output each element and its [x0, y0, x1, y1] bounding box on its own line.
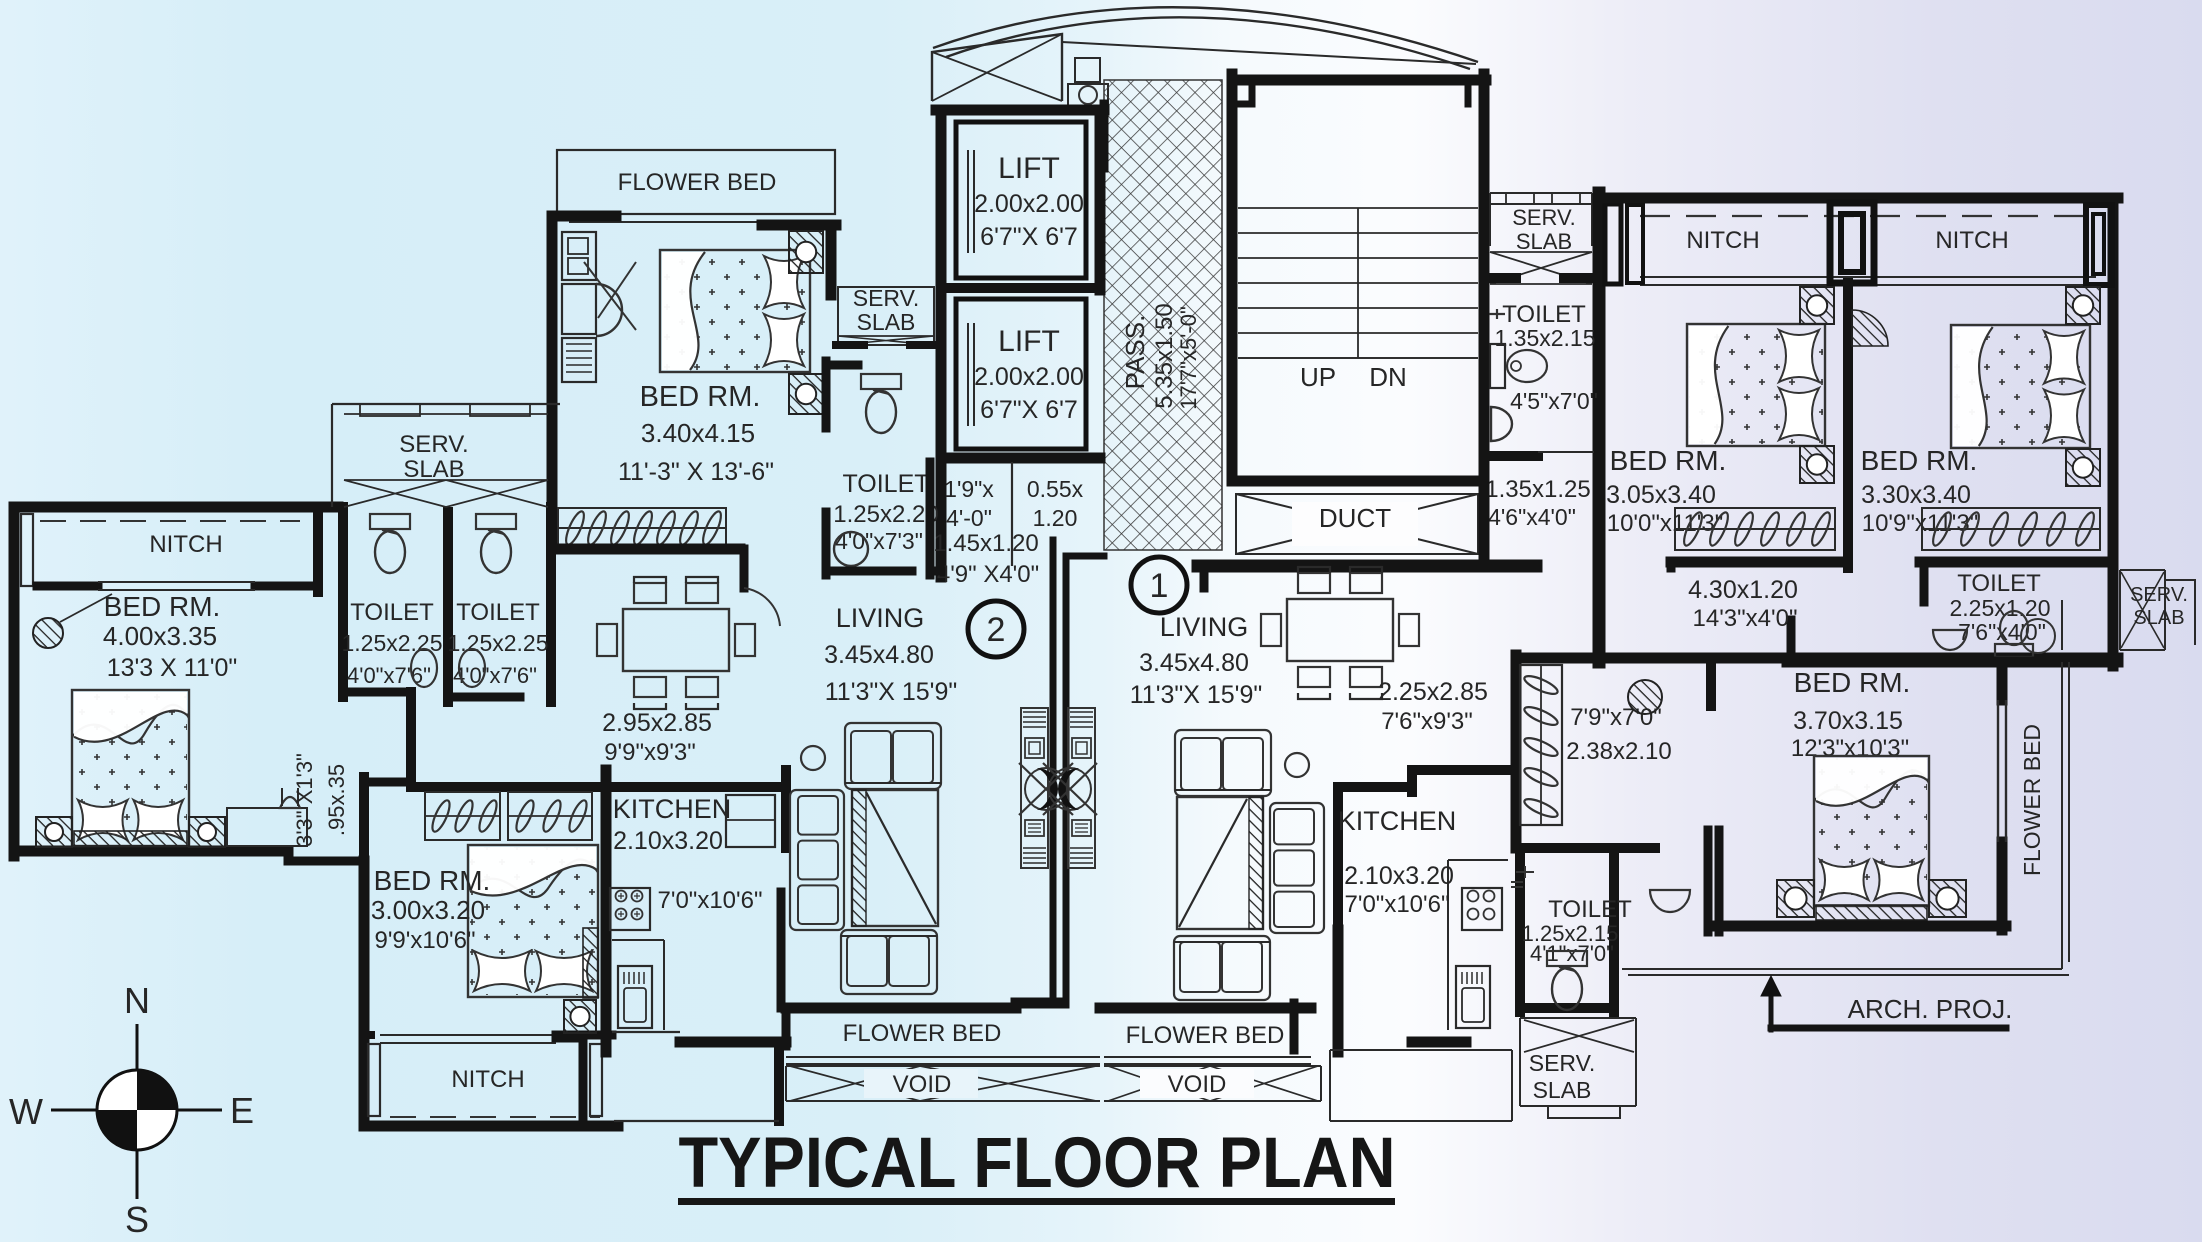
svg-text:PASS.: PASS.	[1120, 315, 1150, 390]
svg-text:VOID: VOID	[893, 1071, 952, 1098]
svg-text:5.35x1.50: 5.35x1.50	[1151, 303, 1178, 408]
svg-text:4'9" X4'0": 4'9" X4'0"	[937, 561, 1039, 588]
svg-text:7'0"x10'6": 7'0"x10'6"	[1345, 891, 1450, 918]
svg-text:UP: UP	[1300, 362, 1336, 392]
svg-text:1.25x2.25: 1.25x2.25	[341, 630, 442, 656]
svg-text:LIVING: LIVING	[836, 603, 925, 633]
svg-text:13'3 X 11'0": 13'3 X 11'0"	[107, 654, 238, 682]
svg-text:FLOWER BED: FLOWER BED	[843, 1020, 1002, 1047]
svg-text:.95x.35: .95x.35	[324, 764, 349, 836]
svg-text:SERV.: SERV.	[853, 285, 920, 311]
svg-text:6'7"X 6'7: 6'7"X 6'7	[980, 223, 1078, 251]
svg-text:NITCH: NITCH	[1935, 227, 2008, 254]
svg-text:12'3"x10'3": 12'3"x10'3"	[1791, 735, 1909, 762]
svg-text:ARCH. PROJ.: ARCH. PROJ.	[1848, 994, 2013, 1024]
svg-text:NITCH: NITCH	[451, 1066, 524, 1093]
svg-text:BED RM.: BED RM.	[374, 865, 491, 896]
svg-text:1.35x1.25: 1.35x1.25	[1485, 476, 1590, 503]
svg-text:KITCHEN: KITCHEN	[1338, 806, 1457, 836]
svg-text:9'9"x9'3": 9'9"x9'3"	[604, 739, 696, 766]
svg-text:3.30x3.40: 3.30x3.40	[1861, 481, 1971, 509]
svg-text:SLAB: SLAB	[1516, 229, 1572, 254]
svg-text:FLOWER BED: FLOWER BED	[1126, 1022, 1285, 1049]
svg-text:17'7"x5'-0": 17'7"x5'-0"	[1176, 306, 1201, 410]
svg-text:3.40x4.15: 3.40x4.15	[641, 418, 755, 448]
svg-text:TOILET: TOILET	[456, 599, 540, 626]
svg-text:3.00x3.20: 3.00x3.20	[371, 895, 485, 925]
svg-text:1.35x2.15: 1.35x2.15	[1494, 325, 1595, 351]
svg-text:TOILET: TOILET	[1957, 570, 2041, 597]
svg-text:2.00x2.00: 2.00x2.00	[974, 363, 1084, 391]
svg-text:3.45x4.80: 3.45x4.80	[824, 641, 934, 669]
svg-text:2.00x2.00: 2.00x2.00	[974, 190, 1084, 218]
svg-text:TOILET: TOILET	[842, 470, 929, 498]
svg-text:FLOWER BED: FLOWER BED	[618, 169, 777, 196]
svg-text:2: 2	[987, 611, 1006, 649]
svg-text:VOID: VOID	[1168, 1071, 1227, 1098]
svg-text:11'3"X 15'9": 11'3"X 15'9"	[1130, 681, 1262, 709]
svg-text:BED RM.: BED RM.	[1794, 667, 1911, 698]
svg-text:6'7"X 6'7: 6'7"X 6'7	[980, 396, 1078, 424]
svg-text:2.25x1.20: 2.25x1.20	[1949, 595, 2050, 621]
svg-text:3.05x3.40: 3.05x3.40	[1606, 481, 1716, 509]
svg-text:4.00x3.35: 4.00x3.35	[103, 621, 217, 651]
svg-text:4'1"x7'0": 4'1"x7'0"	[1530, 941, 1614, 966]
svg-text:KITCHEN: KITCHEN	[613, 794, 732, 824]
svg-text:SERV.: SERV.	[399, 431, 468, 458]
svg-text:W: W	[9, 1091, 43, 1132]
svg-text:BED RM.: BED RM.	[640, 381, 761, 413]
svg-text:DUCT: DUCT	[1319, 503, 1391, 533]
svg-text:N: N	[124, 980, 150, 1021]
svg-text:E: E	[230, 1090, 254, 1131]
svg-text:1: 1	[1150, 567, 1169, 605]
svg-text:0.55x: 0.55x	[1027, 476, 1084, 502]
svg-text:TOILET: TOILET	[1548, 896, 1632, 923]
svg-text:4'5"x7'0": 4'5"x7'0"	[1510, 388, 1598, 414]
svg-text:SERV.: SERV.	[1512, 205, 1576, 230]
svg-text:11'-3" X 13'-6": 11'-3" X 13'-6"	[618, 458, 774, 486]
svg-text:BED RM.: BED RM.	[1861, 445, 1978, 476]
svg-text:1.25x2.25: 1.25x2.25	[447, 630, 548, 656]
svg-text:TOILET: TOILET	[1502, 301, 1586, 328]
svg-text:3.45x4.80: 3.45x4.80	[1139, 649, 1249, 677]
svg-text:10'0"x11'3": 10'0"x11'3"	[1607, 510, 1724, 537]
svg-text:SLAB: SLAB	[857, 309, 916, 335]
svg-text:TYPICAL FLOOR PLAN: TYPICAL FLOOR PLAN	[679, 1124, 1396, 1203]
svg-text:2.25x2.85: 2.25x2.85	[1378, 678, 1488, 706]
svg-text:2.10x3.20: 2.10x3.20	[613, 827, 723, 855]
svg-text:1'9"x: 1'9"x	[944, 476, 994, 502]
svg-text:3.70x3.15: 3.70x3.15	[1793, 707, 1903, 735]
svg-text:1.20: 1.20	[1033, 505, 1078, 531]
svg-text:BED RM.: BED RM.	[1610, 445, 1727, 476]
svg-text:2.38x2.10: 2.38x2.10	[1566, 738, 1671, 765]
svg-text:4'-0": 4'-0"	[946, 505, 992, 531]
svg-text:NITCH: NITCH	[1686, 227, 1759, 254]
svg-text:LIFT: LIFT	[998, 152, 1060, 185]
svg-text:9'9'x10'6": 9'9'x10'6"	[374, 927, 475, 954]
svg-text:LIVING: LIVING	[1160, 612, 1249, 642]
svg-text:14'3"x4'0": 14'3"x4'0"	[1693, 605, 1798, 632]
svg-text:10'9"x11'3": 10'9"x11'3"	[1862, 510, 1979, 537]
svg-text:11'3"X 15'9": 11'3"X 15'9"	[825, 678, 957, 706]
svg-text:2.95x2.85: 2.95x2.85	[602, 709, 712, 737]
svg-text:4'6"x4'0": 4'6"x4'0"	[1488, 504, 1576, 530]
svg-text:4.30x1.20: 4.30x1.20	[1688, 576, 1798, 604]
svg-text:3'3" X1'3": 3'3" X1'3"	[292, 753, 317, 847]
svg-text:SLAB: SLAB	[403, 456, 464, 483]
svg-text:SLAB: SLAB	[2133, 607, 2184, 629]
svg-text:S: S	[125, 1199, 149, 1240]
svg-text:1.45x1.20: 1.45x1.20	[933, 530, 1038, 557]
svg-text:7'0"x10'6": 7'0"x10'6"	[658, 887, 763, 914]
svg-text:SERV.: SERV.	[1529, 1050, 1596, 1076]
svg-text:DN: DN	[1369, 362, 1407, 392]
svg-text:2.10x3.20: 2.10x3.20	[1344, 862, 1454, 890]
svg-text:7'6"x9'3": 7'6"x9'3"	[1381, 708, 1473, 735]
svg-text:BED RM.: BED RM.	[104, 591, 221, 622]
svg-text:TOILET: TOILET	[350, 599, 434, 626]
svg-text:SERV.: SERV.	[2130, 584, 2188, 606]
svg-text:LIFT: LIFT	[998, 325, 1060, 358]
svg-text:FLOWER BED: FLOWER BED	[2019, 724, 2045, 876]
svg-text:NITCH: NITCH	[149, 531, 222, 558]
svg-text:SLAB: SLAB	[1533, 1077, 1592, 1103]
svg-text:1.25x2.20: 1.25x2.20	[833, 501, 938, 528]
svg-text:7'6"x4'0": 7'6"x4'0"	[1958, 619, 2046, 645]
